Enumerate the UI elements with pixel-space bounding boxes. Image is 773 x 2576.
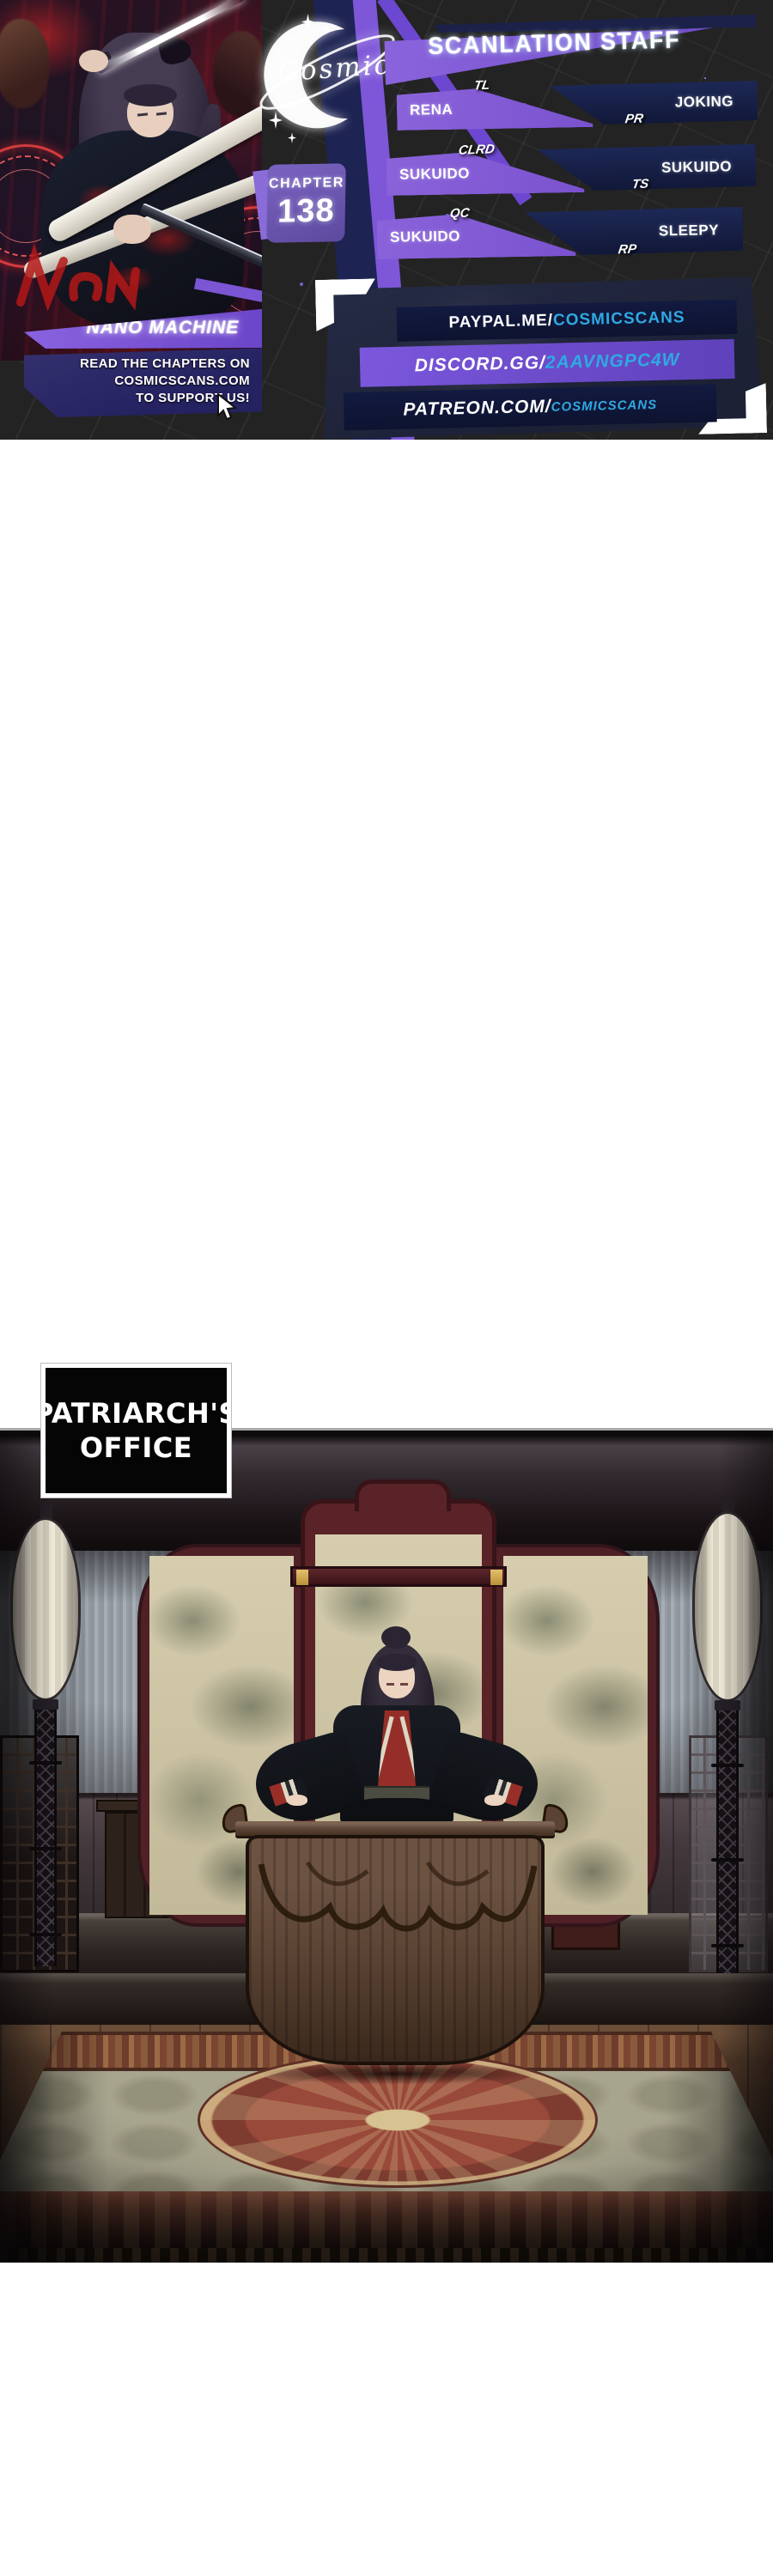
link-prefix: PATREON.COM/ [403, 397, 551, 421]
gold-bracket [490, 1570, 502, 1585]
patriarch-topknot [381, 1626, 411, 1649]
cursor-icon [216, 393, 239, 422]
link-prefix: DISCORD.GG/ [414, 353, 545, 376]
caption-line: OFFICE [80, 1431, 192, 1465]
credits-banner: NANO MACHINE READ THE CHAPTERS ON COSMIC… [0, 0, 773, 440]
lantern-stand [34, 1710, 57, 1966]
lantern-shade [10, 1517, 81, 1701]
lantern-stand-ring [711, 1764, 744, 1767]
lantern-stand [716, 1710, 739, 1973]
chapter-number: 138 [277, 192, 335, 230]
webtoon-page: NANO MACHINE READ THE CHAPTERS ON COSMIC… [0, 0, 773, 2576]
promo-line: COSMICSCANS.COM [114, 373, 250, 390]
promo-line: READ THE CHAPTERS ON [80, 355, 250, 373]
cosmic-logo: Cosmic [252, 5, 406, 164]
floor-lantern-right [691, 1498, 766, 1978]
patriarch-hand [287, 1795, 307, 1806]
lantern-stand-ring [711, 1944, 744, 1947]
protagonist-hand [113, 215, 151, 244]
lantern-cap [715, 1700, 740, 1710]
lantern-stand-ring [29, 1761, 62, 1765]
staff-role: TL [473, 78, 491, 94]
lantern-shade [692, 1511, 763, 1702]
link-handle: COSMICSCANS [551, 397, 657, 414]
staff-role: CLRD [458, 142, 496, 157]
staff-role: TS [631, 177, 650, 192]
gold-bracket [296, 1570, 308, 1585]
screen-crossbar [290, 1566, 507, 1587]
desk-top [235, 1821, 555, 1836]
patriarch-eye [386, 1683, 394, 1686]
staff-role: QC [449, 206, 471, 222]
link-prefix: PAYPAL.ME/ [448, 312, 553, 333]
floor-lantern-left [9, 1504, 84, 1971]
office-scene-panel [0, 1428, 773, 2263]
protagonist-hand [79, 50, 108, 72]
chapter-label: CHAPTER [269, 175, 344, 192]
lantern-stand-ring [711, 1858, 744, 1862]
link-handle: COSMICSCANS [553, 308, 685, 330]
red-title-scribble [14, 242, 220, 319]
patriarch-eye [400, 1683, 408, 1686]
lantern-cap [33, 1699, 58, 1710]
desk-front [246, 1835, 545, 2065]
patriarch-face [379, 1659, 415, 1698]
staff-role: PR [624, 112, 644, 127]
staff-role: RP [618, 242, 637, 258]
cover-art [0, 0, 262, 361]
link-handle: 2AAVNGPC4W [545, 349, 680, 374]
chapter-badge: CHAPTER 138 [266, 163, 346, 243]
lantern-stand-ring [29, 1847, 62, 1850]
desk-shadow [258, 2063, 533, 2085]
support-links-block: PAYPAL.ME/ COSMICSCANS DISCORD.GG/ 2AAVN… [320, 276, 764, 440]
scene-caption-box: PATRIARCH'S OFFICE [41, 1364, 231, 1498]
lantern-stand-ring [29, 1933, 62, 1936]
desk-carved-apron [256, 1854, 539, 1957]
patriarch-hand [484, 1795, 505, 1806]
caption-line: PATRIARCH'S [33, 1396, 239, 1431]
